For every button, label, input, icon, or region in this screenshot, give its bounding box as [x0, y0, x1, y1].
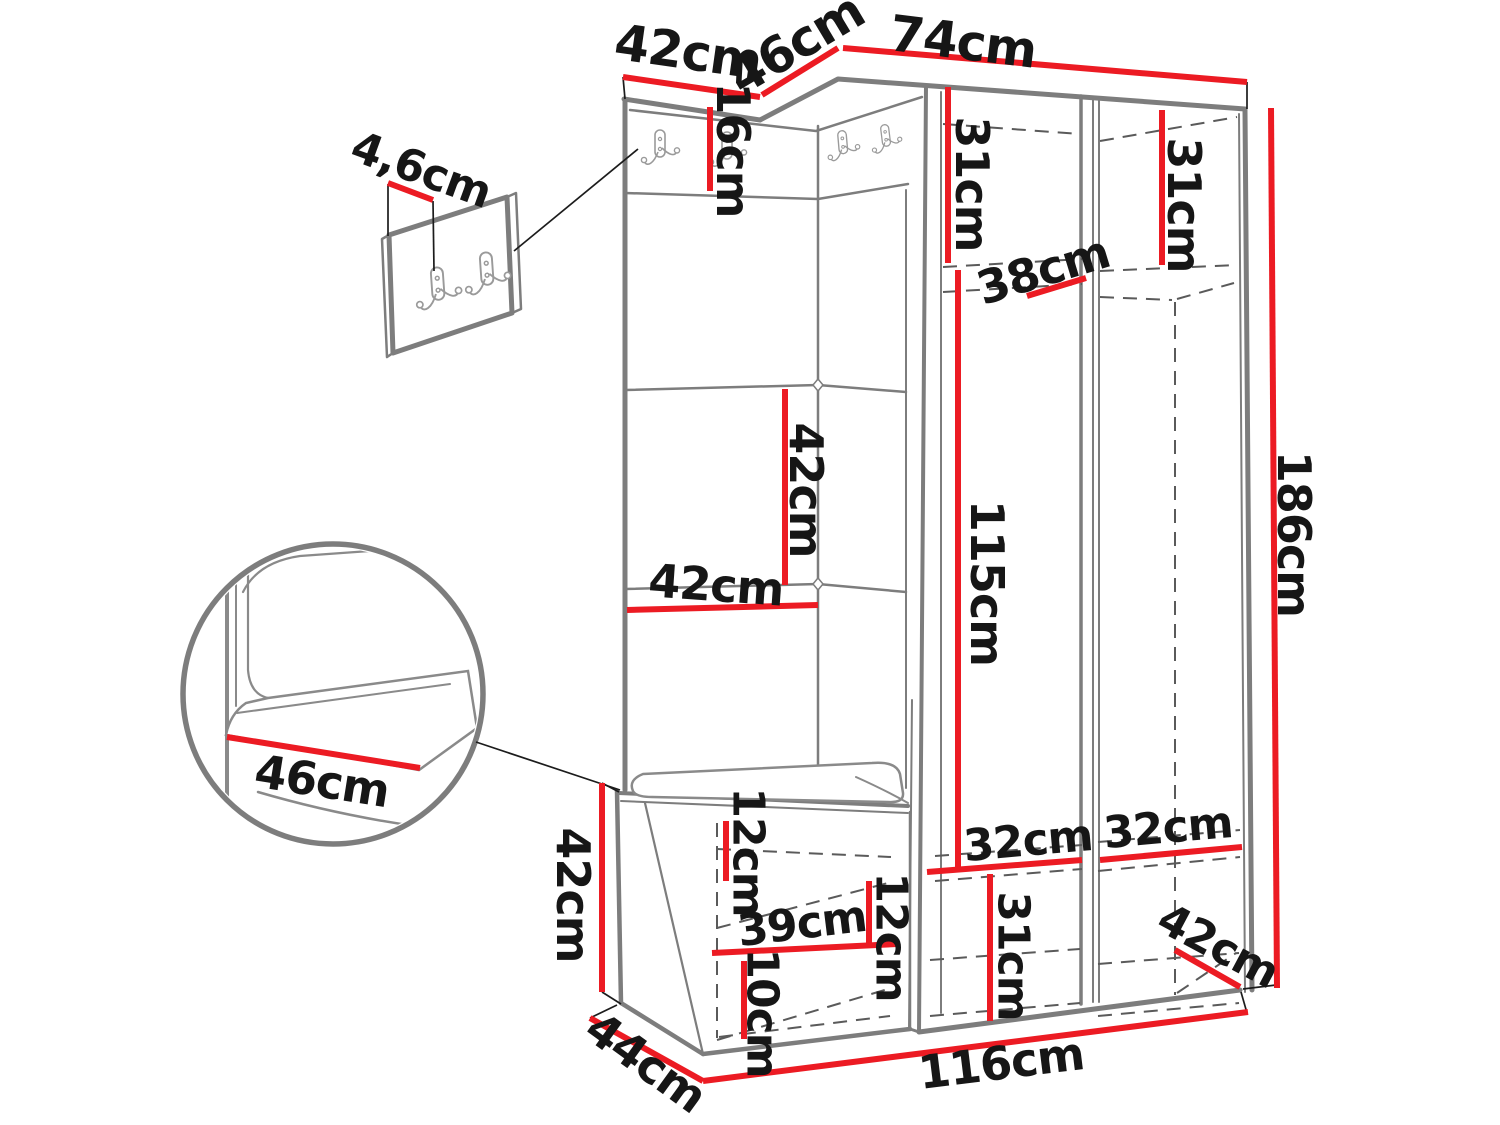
bench-front-left-edge [645, 803, 703, 1054]
dim-label-bench-side-offset: 12cm [866, 872, 917, 1001]
dim-label-total-width: 116cm [915, 1026, 1087, 1100]
dim-label-top-width-right: 74cm [886, 4, 1039, 80]
ext-panel-b [433, 201, 434, 271]
dim-label-bench-bottom-offset: 10cm [737, 948, 788, 1077]
callout-panel-line [514, 149, 638, 251]
hook-icon [641, 130, 679, 164]
panel-seam-upper [625, 385, 906, 392]
ext-top-left [623, 77, 625, 99]
dim-label-hanging-height: 115cm [960, 500, 1014, 666]
dim-label-bottom-depth: 42cm [1149, 893, 1287, 999]
hook-panel-detail [382, 193, 521, 357]
hallway-unit-dimension-diagram: 42cm 46cm 74cm 4,6cm 16cm 31cm 31cm 38cm… [0, 0, 1500, 1125]
dim-label-hook-strip-height: 16cm [706, 82, 760, 217]
dim-label-bench-top-offset: 12cm [723, 787, 774, 916]
hook-icon [826, 129, 861, 161]
hook-strip-bottom-edge [625, 184, 908, 199]
dim-label-total-height: 186cm [1267, 451, 1321, 617]
dim-label-bench-height: 42cm [546, 827, 600, 962]
bench-left-edge [617, 791, 621, 1003]
dim-label-panel-thickness: 4,6cm [344, 121, 498, 218]
dim-label-panel-width: 42cm [647, 553, 786, 616]
panel-button-upper [813, 379, 823, 391]
panel-button-lower [813, 578, 823, 590]
dim-label-panel-height: 42cm [779, 422, 833, 557]
hook-icon [869, 123, 903, 154]
dash-shelf-right-c [1177, 283, 1234, 299]
diagram-page: 42cm 46cm 74cm 4,6cm 16cm 31cm 31cm 38cm… [0, 0, 1500, 1125]
dim-label-bottom-section-height: 31cm [988, 891, 1039, 1020]
wardrobe-left-edge [919, 86, 926, 1032]
coat-hooks [641, 123, 903, 166]
callout-circle-line [476, 742, 620, 790]
wardrobe-right-edge [1245, 110, 1252, 990]
dash-shelf-right-b [1100, 297, 1172, 300]
dim-label-top-shelf-right: 31cm [1157, 137, 1211, 272]
bench-front-bottom [703, 1029, 910, 1054]
dim-label-top-shelf-left: 31cm [945, 116, 999, 251]
